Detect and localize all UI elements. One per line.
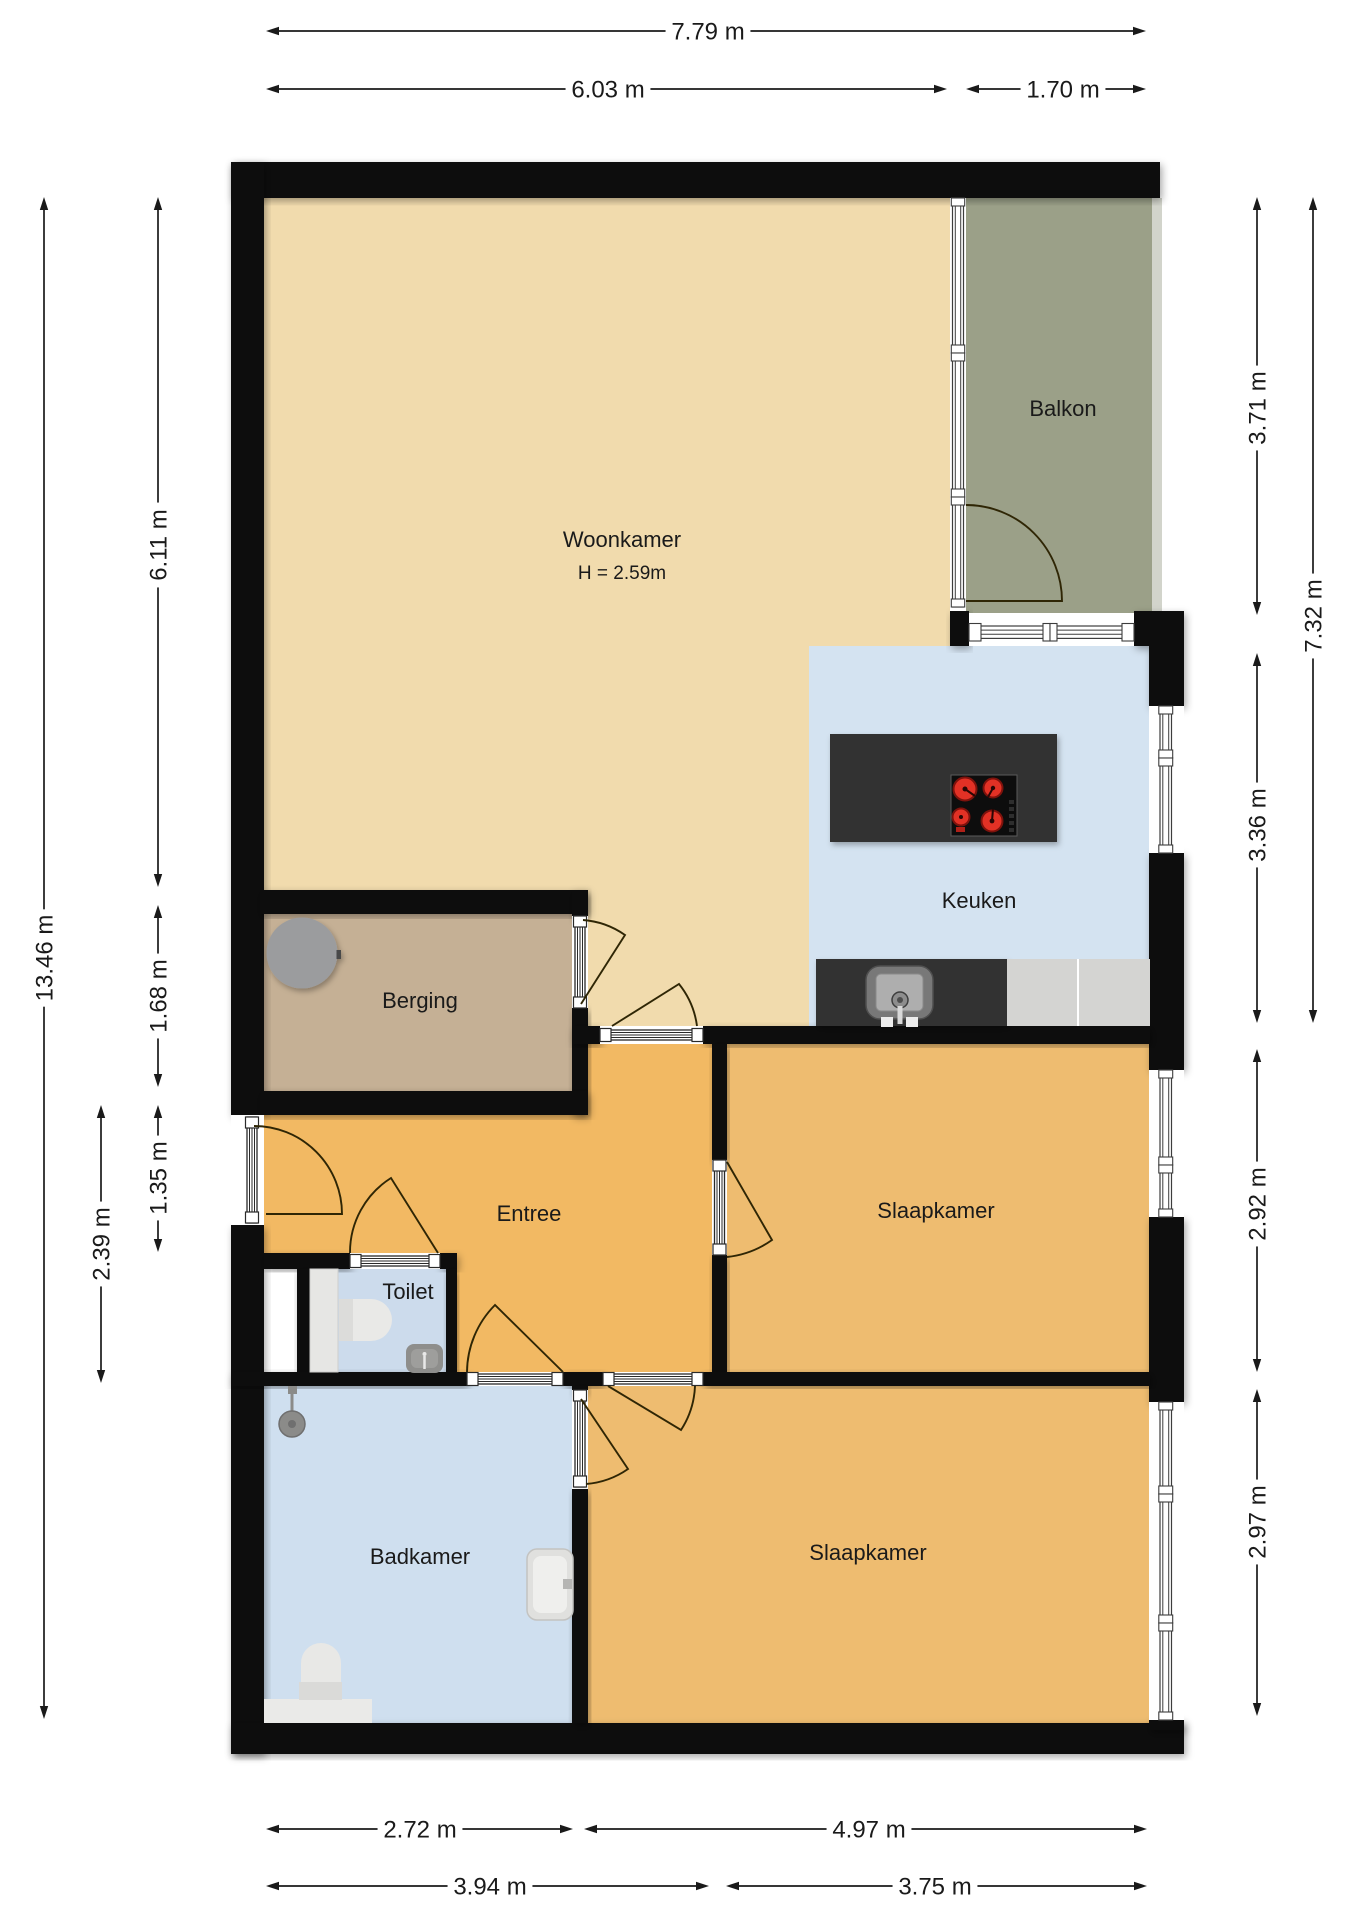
svg-text:1.70 m: 1.70 m bbox=[1026, 77, 1099, 104]
svg-text:Slaapkamer: Slaapkamer bbox=[877, 1198, 994, 1223]
svg-text:1.35 m: 1.35 m bbox=[146, 1141, 173, 1214]
svg-text:13.46 m: 13.46 m bbox=[32, 915, 59, 1002]
svg-text:Balkon: Balkon bbox=[1029, 396, 1096, 421]
svg-text:Toilet: Toilet bbox=[382, 1279, 433, 1304]
svg-text:6.03 m: 6.03 m bbox=[571, 77, 644, 104]
svg-text:Slaapkamer: Slaapkamer bbox=[809, 1540, 926, 1565]
svg-text:6.11 m: 6.11 m bbox=[146, 509, 173, 581]
svg-text:2.72 m: 2.72 m bbox=[383, 1817, 456, 1844]
svg-text:1.68 m: 1.68 m bbox=[146, 959, 173, 1032]
svg-text:Woonkamer: Woonkamer bbox=[563, 527, 681, 552]
svg-text:Badkamer: Badkamer bbox=[370, 1544, 470, 1569]
svg-text:3.36 m: 3.36 m bbox=[1245, 788, 1272, 861]
svg-text:Keuken: Keuken bbox=[942, 888, 1017, 913]
svg-text:7.79 m: 7.79 m bbox=[671, 19, 744, 46]
svg-text:2.92 m: 2.92 m bbox=[1245, 1167, 1272, 1240]
svg-text:H = 2.59m: H = 2.59m bbox=[578, 563, 666, 584]
svg-text:Berging: Berging bbox=[382, 988, 458, 1013]
svg-text:3.71 m: 3.71 m bbox=[1245, 371, 1272, 444]
svg-text:2.39 m: 2.39 m bbox=[89, 1207, 116, 1280]
svg-text:4.97 m: 4.97 m bbox=[832, 1817, 905, 1844]
svg-text:Entree: Entree bbox=[497, 1201, 562, 1226]
svg-text:7.32 m: 7.32 m bbox=[1301, 579, 1328, 652]
svg-text:3.75 m: 3.75 m bbox=[898, 1874, 971, 1901]
svg-text:2.97 m: 2.97 m bbox=[1245, 1485, 1272, 1558]
svg-text:3.94 m: 3.94 m bbox=[453, 1874, 526, 1901]
